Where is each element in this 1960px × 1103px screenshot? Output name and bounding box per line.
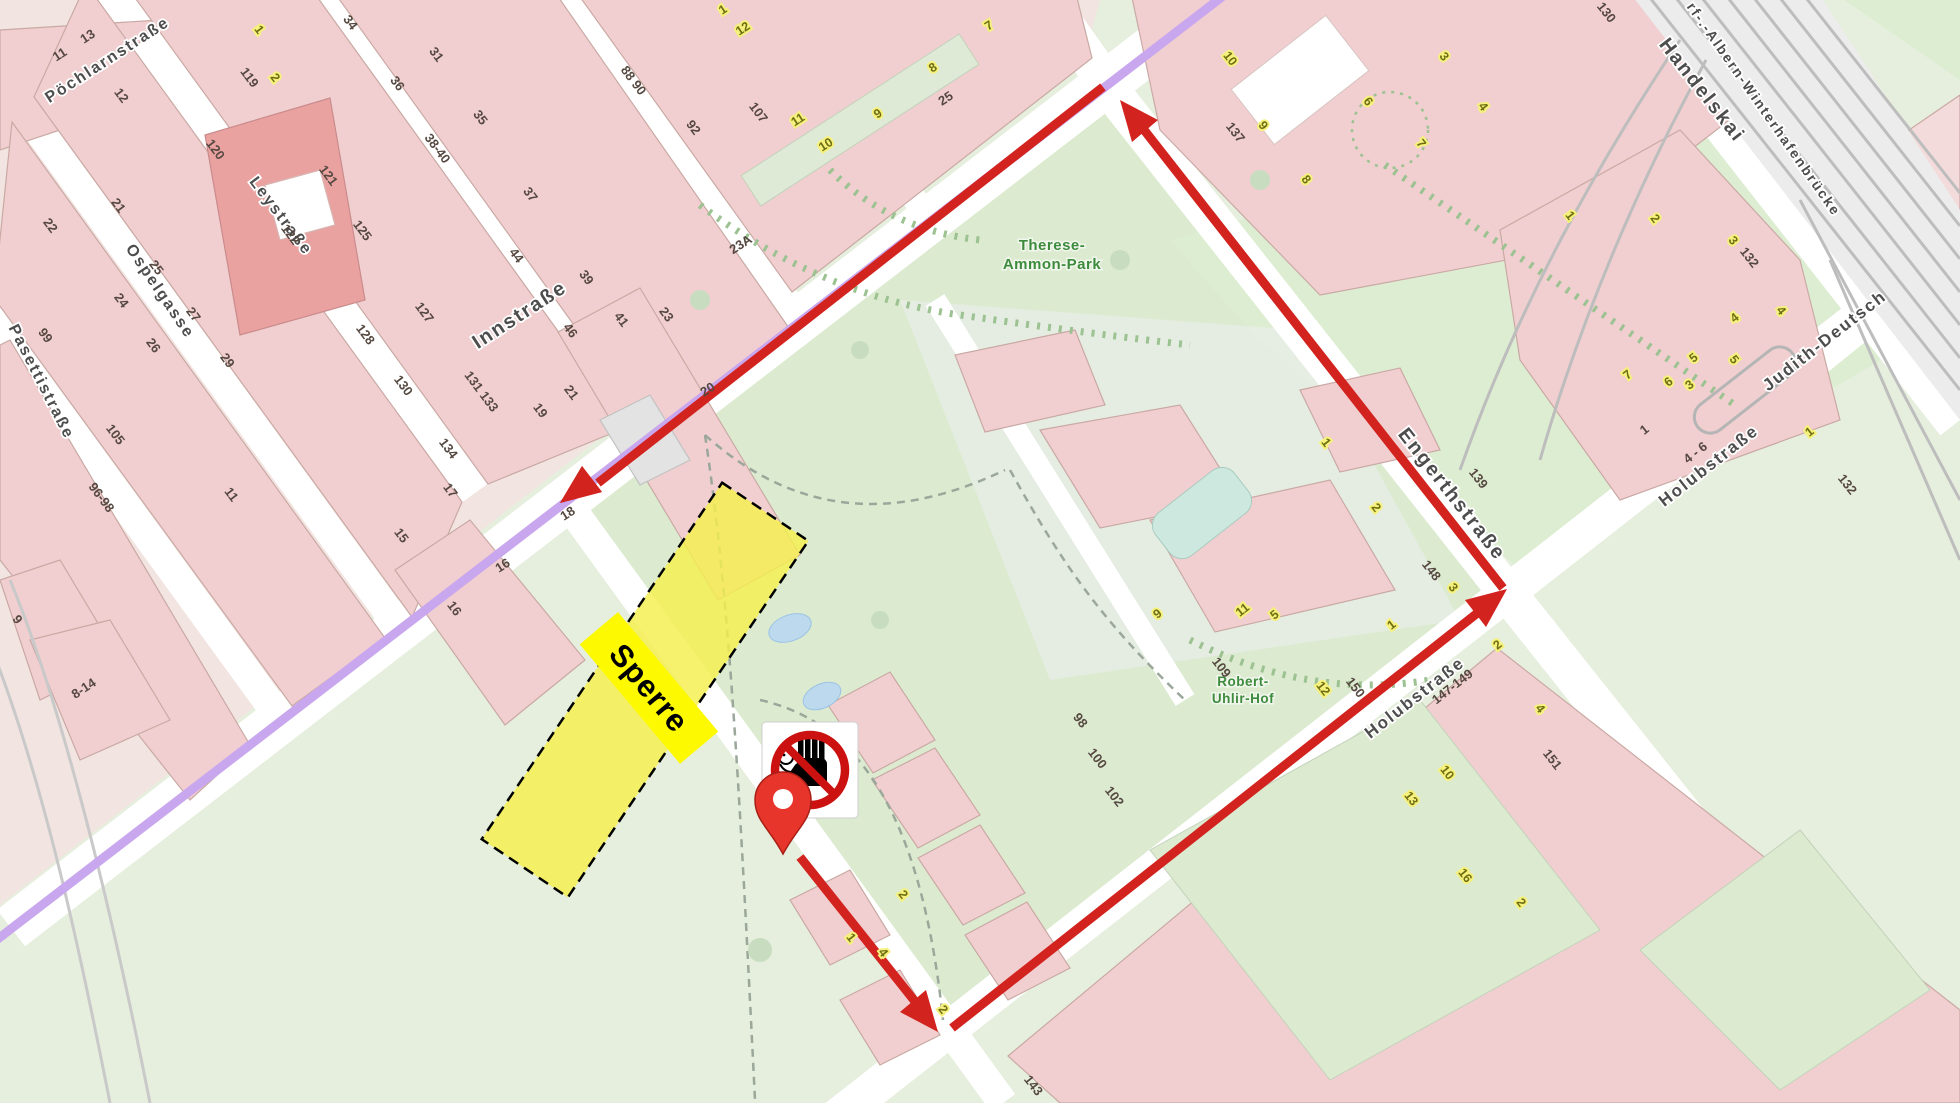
area-label: Therese-	[1019, 237, 1086, 254]
area-label: Ammon-Park	[1003, 256, 1102, 273]
area-label: Uhlir-Hof	[1212, 691, 1274, 706]
map-screenshot: Sperre	[0, 0, 1960, 1103]
map-canvas[interactable]: Sperre	[0, 0, 1960, 1103]
